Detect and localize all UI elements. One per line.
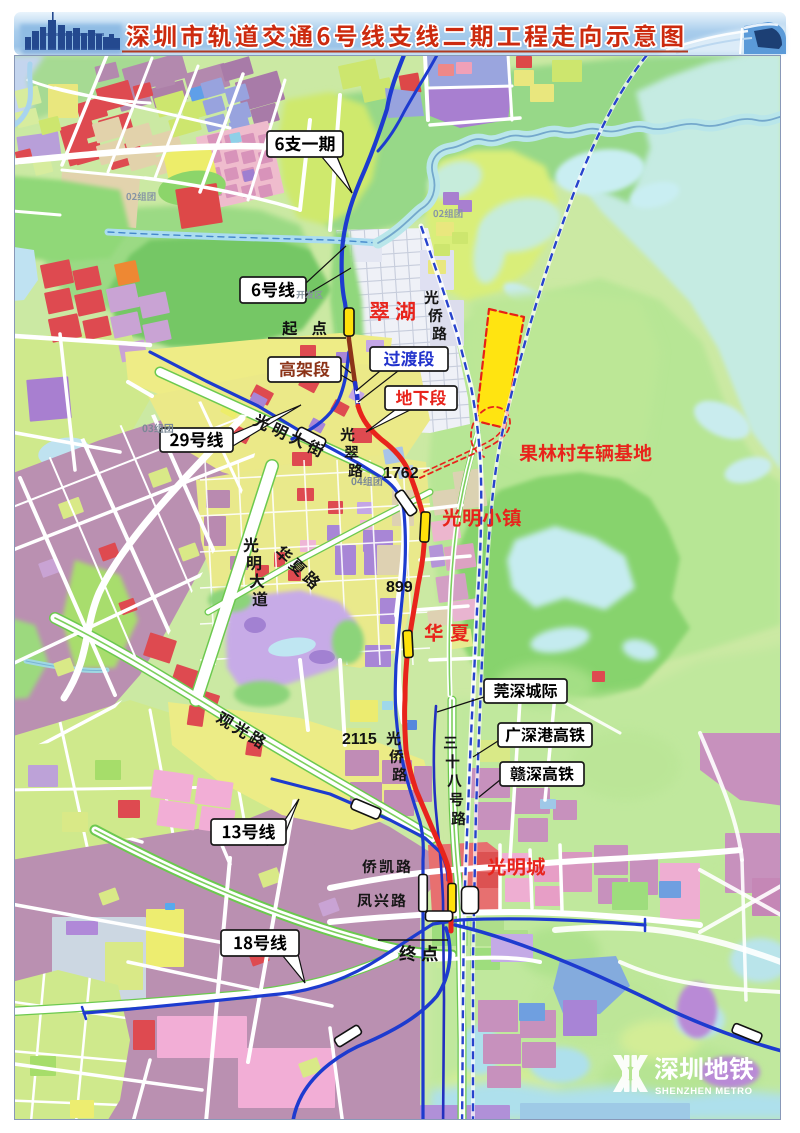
svg-text:SHENZHEN METRO: SHENZHEN METRO — [655, 1086, 753, 1097]
svg-text:1762: 1762 — [383, 465, 419, 482]
svg-text:899: 899 — [386, 579, 413, 596]
svg-text:2115: 2115 — [342, 731, 377, 748]
